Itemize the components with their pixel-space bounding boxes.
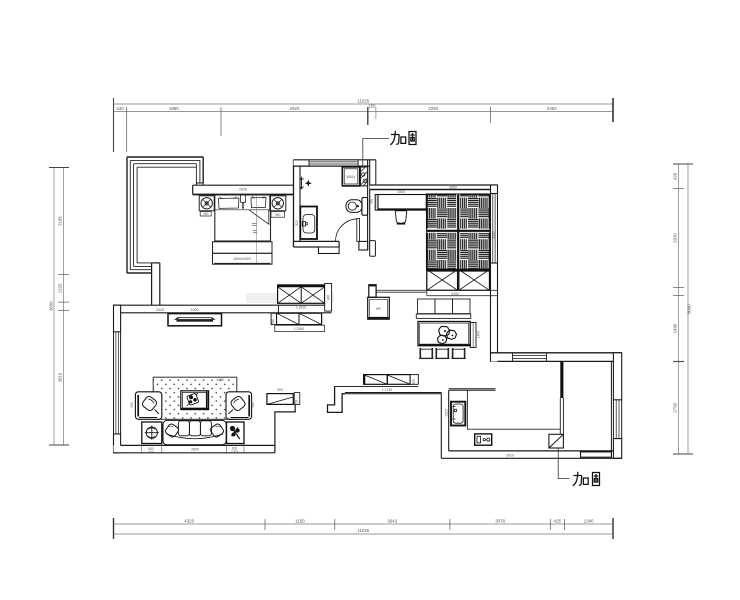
svg-text:3500: 3500 [191, 448, 199, 452]
svg-text:3078: 3078 [495, 519, 505, 524]
svg-text:450: 450 [275, 213, 281, 217]
svg-text:1500: 1500 [397, 190, 405, 194]
svg-text:240: 240 [116, 106, 124, 111]
svg-text:2450: 2450 [547, 106, 557, 111]
svg-text:1500x2000: 1500x2000 [233, 257, 251, 261]
svg-text:2920: 2920 [673, 233, 678, 243]
svg-text:9050: 9050 [49, 301, 54, 311]
svg-text:11025: 11025 [357, 99, 369, 104]
svg-text:900: 900 [251, 402, 255, 408]
svg-text:2400: 2400 [216, 378, 224, 382]
svg-text:1340: 1340 [584, 519, 594, 524]
svg-text:350: 350 [412, 379, 416, 385]
svg-text:1150: 1150 [295, 519, 305, 524]
svg-text:420: 420 [673, 172, 678, 180]
svg-text:600: 600 [148, 451, 154, 455]
svg-text:350: 350 [271, 319, 275, 325]
svg-text:3050: 3050 [449, 186, 457, 190]
svg-text:4325: 4325 [184, 519, 194, 524]
svg-text:2750: 2750 [673, 402, 678, 412]
svg-text:1200: 1200 [191, 308, 199, 312]
svg-text:WF: WF [376, 307, 382, 311]
svg-text:2630: 2630 [239, 188, 247, 192]
svg-text:400: 400 [327, 295, 331, 301]
svg-text:11025: 11025 [357, 528, 369, 533]
svg-text:425: 425 [554, 519, 562, 524]
svg-text:1880: 1880 [169, 106, 179, 111]
svg-text:1525: 1525 [444, 409, 448, 417]
svg-text:1490: 1490 [673, 323, 678, 333]
svg-text:3810: 3810 [58, 372, 63, 382]
svg-text:W614: W614 [346, 175, 355, 179]
svg-text:450: 450 [203, 212, 209, 216]
svg-text:3150: 3150 [451, 292, 459, 296]
svg-text:900: 900 [277, 388, 283, 392]
svg-text:1 1580: 1 1580 [294, 327, 304, 331]
svg-text:1400: 1400 [477, 331, 481, 339]
svg-text:1 1730: 1 1730 [382, 388, 392, 392]
svg-text:4325: 4325 [156, 308, 164, 312]
svg-text:350: 350 [295, 400, 299, 406]
svg-text:3642: 3642 [387, 519, 397, 524]
svg-text:900: 900 [130, 402, 134, 408]
svg-text:1 1810: 1 1810 [296, 305, 306, 309]
svg-text:2920: 2920 [290, 106, 300, 111]
svg-text:8050: 8050 [687, 304, 692, 314]
svg-text:1200: 1200 [231, 450, 238, 454]
svg-text:800: 800 [295, 220, 299, 226]
svg-text:2185: 2185 [58, 216, 63, 226]
svg-text:2290: 2290 [428, 106, 438, 111]
svg-text:2630: 2630 [492, 231, 496, 239]
svg-text:1325: 1325 [58, 283, 63, 293]
svg-text:3910: 3910 [506, 454, 514, 458]
svg-text:150: 150 [368, 104, 376, 109]
svg-text:450: 450 [369, 199, 373, 205]
